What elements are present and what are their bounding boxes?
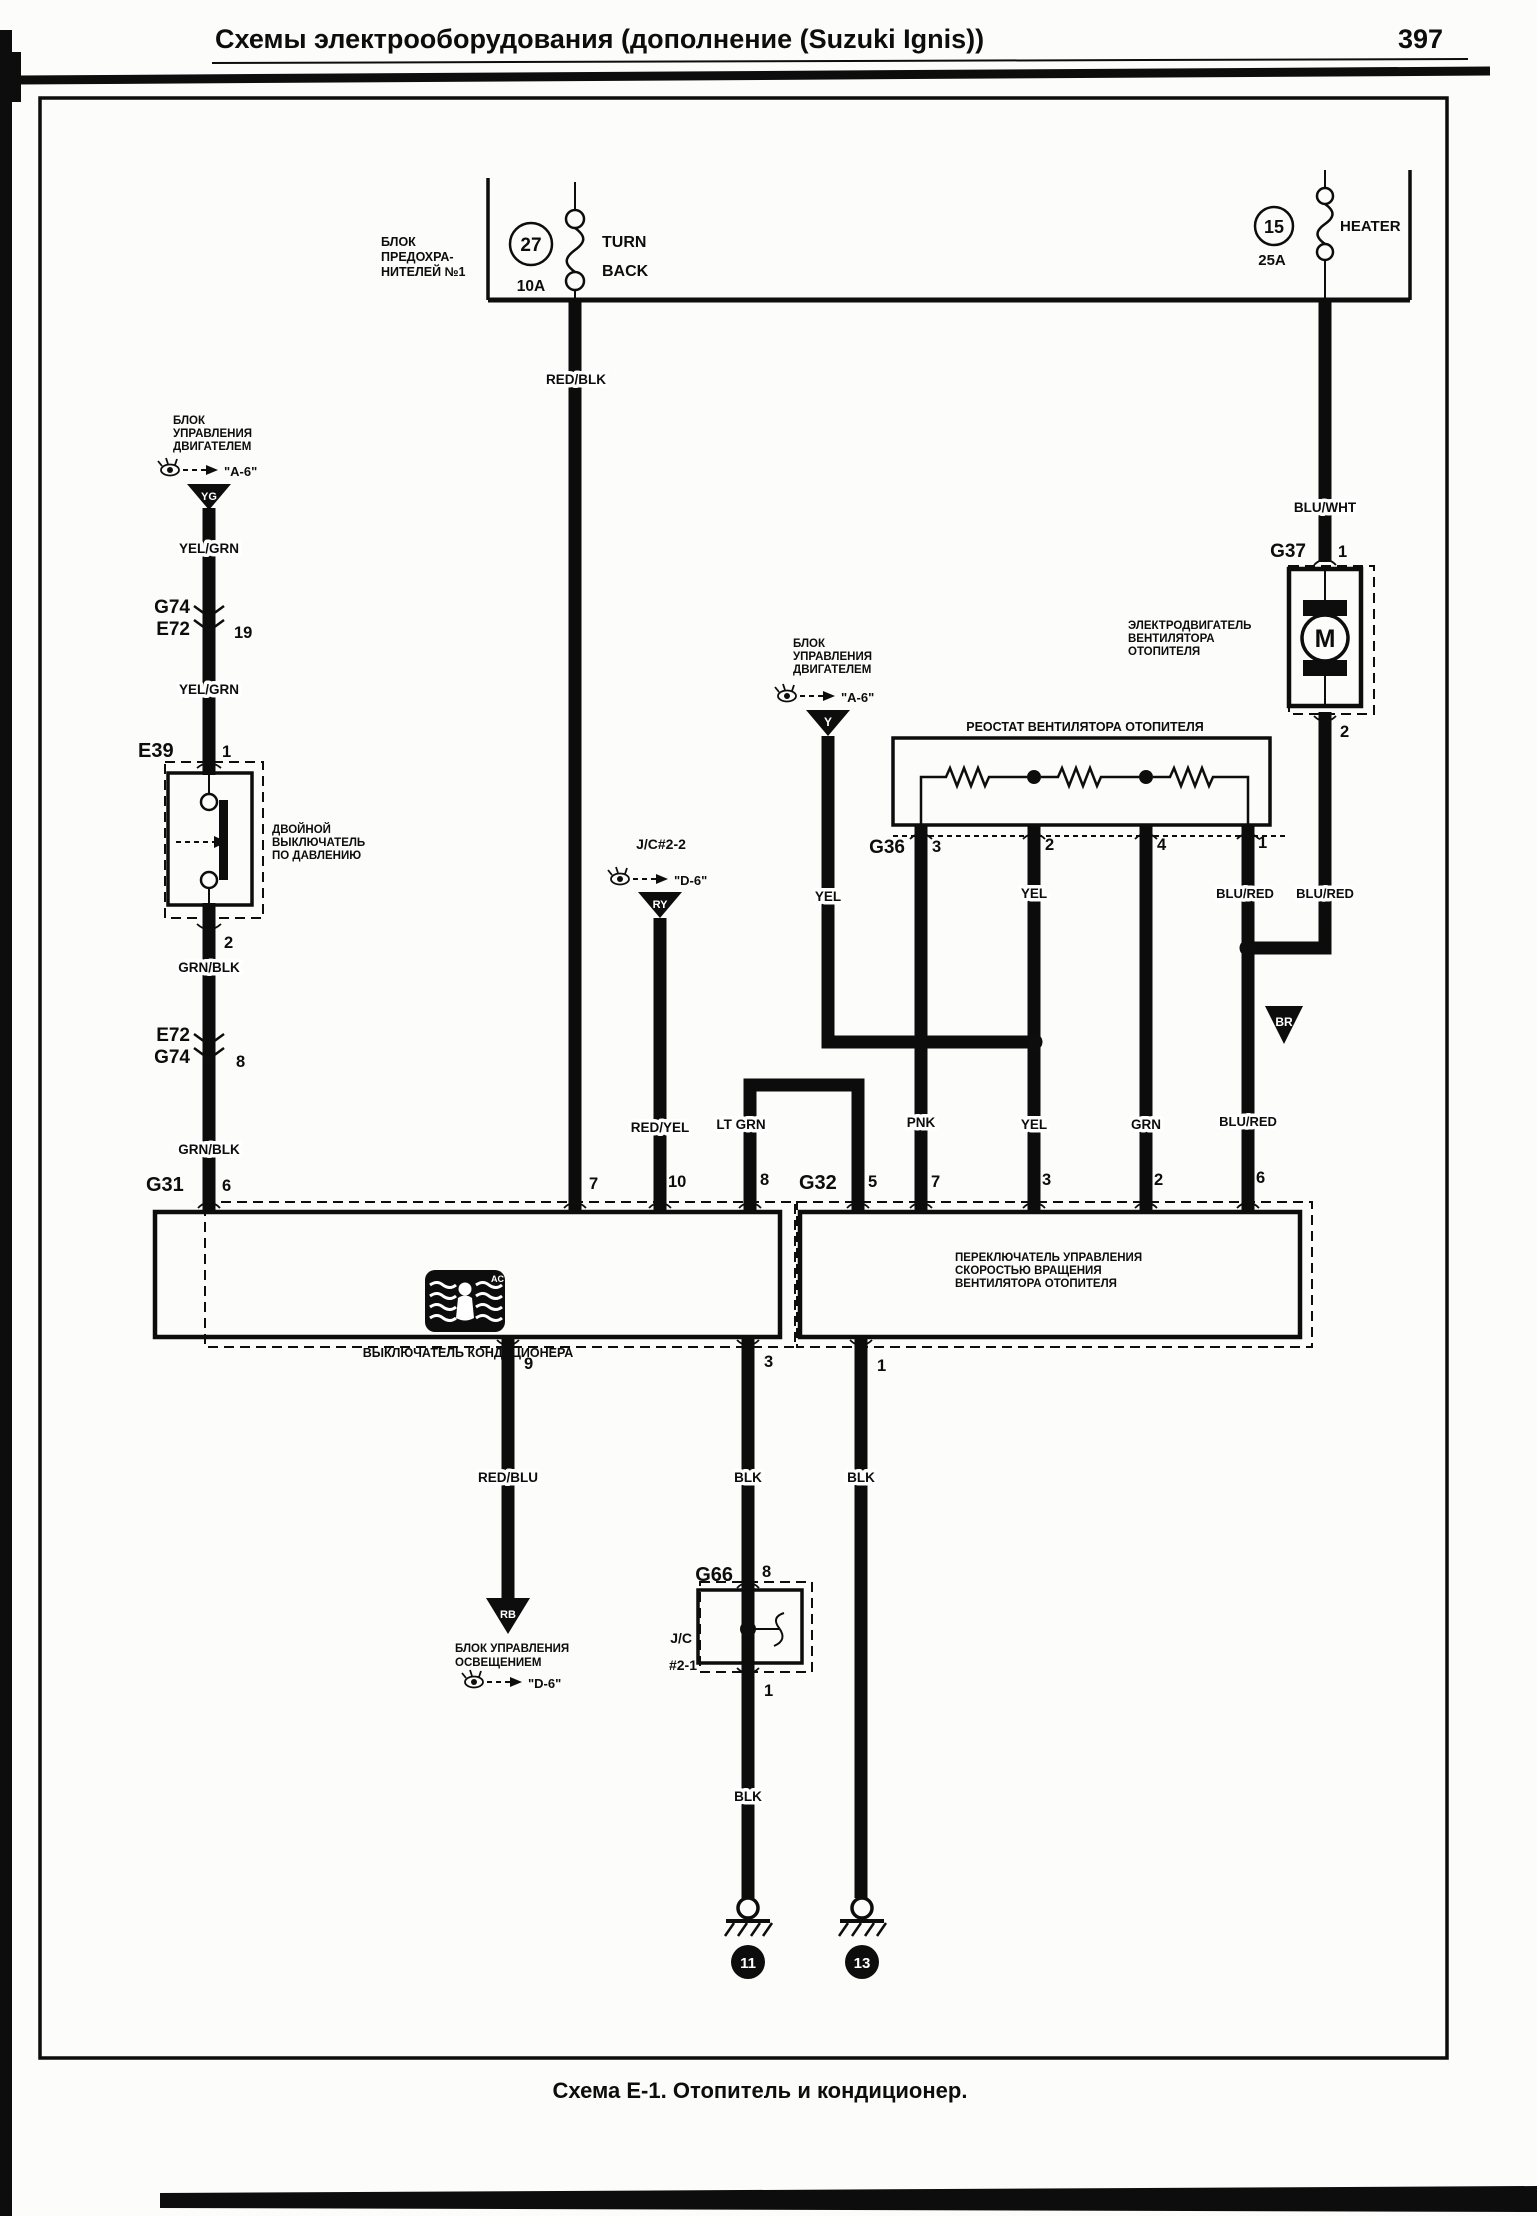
svg-text:ДВИГАТЕЛЕМ: ДВИГАТЕЛЕМ	[793, 664, 871, 676]
svg-text:УПРАВЛЕНИЯ: УПРАВЛЕНИЯ	[173, 428, 252, 440]
svg-text:ЭЛЕКТРОДВИГАТЕЛЬ: ЭЛЕКТРОДВИГАТЕЛЬ	[1128, 620, 1251, 632]
svg-text:6: 6	[1256, 1169, 1265, 1187]
svg-text:1: 1	[764, 1682, 773, 1700]
svg-text:3: 3	[764, 1353, 773, 1371]
page-number: 397	[1398, 24, 1443, 54]
wire-label-blk-2: BLK	[847, 1470, 875, 1485]
wire-label-grn-blk-2: GRN/BLK	[178, 1142, 240, 1157]
svg-text:СКОРОСТЬЮ ВРАЩЕНИЯ: СКОРОСТЬЮ ВРАЩЕНИЯ	[955, 1265, 1102, 1277]
jc21-box: G66 8 J/C #2-1 1	[669, 1563, 812, 1700]
wire-label-red-blu: RED/BLU	[478, 1470, 538, 1485]
svg-text:10: 10	[668, 1173, 686, 1191]
svg-text:3: 3	[932, 838, 941, 856]
wire-label-yel-grn-1: YEL/GRN	[179, 541, 239, 556]
svg-text:2: 2	[1340, 723, 1349, 741]
arrow-icon	[823, 691, 835, 701]
svg-text:#2-1: #2-1	[669, 1657, 697, 1673]
fuse-27: 27 10A TURN BACK	[510, 182, 649, 300]
svg-text:ОСВЕЩЕНИЕМ: ОСВЕЩЕНИЕМ	[455, 1657, 541, 1669]
svg-text:E72: E72	[156, 619, 190, 640]
svg-text:19: 19	[234, 624, 252, 642]
eye-icon	[608, 867, 668, 885]
svg-text:G74: G74	[154, 1047, 190, 1068]
wire-label-grn-blk-1: GRN/BLK	[178, 960, 240, 975]
fuse-symbol	[1318, 204, 1333, 244]
svg-text:Y: Y	[824, 715, 832, 729]
eye-icon	[158, 458, 218, 476]
wire-label-blu-red-mid: BLU/RED	[1219, 1114, 1277, 1129]
title-underline	[212, 59, 1468, 63]
svg-text:5: 5	[868, 1173, 877, 1191]
wire-label-red-yel: RED/YEL	[631, 1120, 690, 1135]
motor-symbol: M	[1315, 625, 1336, 653]
bottom-scan-bar	[160, 2186, 1537, 2212]
svg-text:8: 8	[236, 1053, 245, 1071]
ground-11: 11	[725, 1898, 772, 1979]
fuse-block: БЛОК ПРЕДОХРА- НИТЕЛЕЙ №1 27 10A TURN BA…	[381, 170, 1410, 300]
svg-text:2: 2	[1045, 836, 1054, 854]
ac-switch-box: G31 6 7 10 8 AC ВЫКЛЮЧАТЕЛЬ КОНДИЦИОНЕРА…	[146, 1171, 795, 1373]
connector-g31-label: G31	[146, 1174, 184, 1196]
connector-g37-label: G37	[1270, 541, 1306, 562]
scanned-manual-page: Схемы электрооборудования (дополнение (S…	[0, 0, 1537, 2216]
diagram-caption: Схема Е-1. Отопитель и кондиционер.	[553, 2078, 968, 2103]
svg-text:ВЫКЛЮЧАТЕЛЬ: ВЫКЛЮЧАТЕЛЬ	[272, 837, 365, 849]
svg-text:HEATER: HEATER	[1340, 218, 1401, 235]
wire-label-pnk: PNK	[907, 1115, 936, 1130]
svg-text:RB: RB	[500, 1609, 516, 1621]
svg-text:БЛОК: БЛОК	[173, 415, 206, 427]
eye-icon	[775, 684, 835, 702]
wire-label-yel-grn-2: YEL/GRN	[179, 682, 239, 697]
ref-d6: "D-6"	[528, 1676, 561, 1691]
svg-text:11: 11	[740, 1955, 756, 1972]
svg-text:6: 6	[222, 1177, 231, 1195]
svg-text:13: 13	[854, 1955, 871, 1972]
eye-icon	[462, 1670, 522, 1688]
svg-text:3: 3	[1042, 1171, 1051, 1189]
svg-text:БЛОК: БЛОК	[793, 638, 826, 650]
svg-text:15: 15	[1264, 217, 1284, 237]
wire-label-yel-res: YEL	[1021, 886, 1047, 901]
wire-label-lt-grn: LT GRN	[716, 1117, 765, 1132]
svg-text:J/C: J/C	[670, 1630, 692, 1646]
header-rule	[18, 71, 1490, 80]
svg-text:7: 7	[931, 1173, 940, 1191]
ecu-left-block: БЛОК УПРАВЛЕНИЯ ДВИГАТЕЛЕМ "A-6" YG	[158, 415, 257, 510]
svg-text:ОТОПИТЕЛЯ: ОТОПИТЕЛЯ	[1128, 646, 1200, 658]
svg-text:2: 2	[1154, 1171, 1163, 1189]
wiring-diagram-svg: Схемы электрооборудования (дополнение (S…	[0, 0, 1537, 2216]
ground-13: 13	[839, 1898, 886, 1979]
wire-label-blu-red-left: BLU/RED	[1216, 886, 1274, 901]
wire-label-blk-1: BLK	[734, 1470, 762, 1485]
svg-text:YG: YG	[201, 491, 217, 503]
svg-text:7: 7	[589, 1175, 598, 1193]
resistor-3	[1153, 768, 1248, 825]
svg-text:BACK: BACK	[602, 263, 649, 280]
br-splice-marker: BR	[1265, 1006, 1303, 1044]
wire-label-red-blk: RED/BLK	[546, 372, 606, 387]
heater-motor: BLU/WHT G37 1 M ЭЛЕКТРОДВИГАТЕЛЬ ВЕНТИЛЯ…	[1128, 500, 1374, 741]
wire-label-grn: GRN	[1131, 1117, 1161, 1132]
wire-label-blu-red-right: BLU/RED	[1296, 886, 1354, 901]
blower-switch-box: G32 5 7 3 2 6 ПЕРЕКЛЮЧАТЕЛЬ УПРАВЛЕНИЯ С…	[797, 1169, 1312, 1375]
resistor-1	[921, 768, 1027, 825]
svg-text:J/C#2-2: J/C#2-2	[636, 836, 686, 852]
svg-text:2: 2	[224, 934, 233, 952]
svg-text:ВЕНТИЛЯТОРА: ВЕНТИЛЯТОРА	[1128, 633, 1215, 645]
ecu-mid-block: БЛОК УПРАВЛЕНИЯ ДВИГАТЕЛЕМ "A-6" Y	[775, 638, 874, 736]
fuse-block-label: БЛОК	[381, 235, 416, 249]
pressure-switch: E39 1 ДВОЙНОЙ ВЫКЛЮЧАТЕЛЬ ПО ДАВЛЕНИЮ 2	[138, 740, 365, 952]
svg-text:10A: 10A	[517, 278, 545, 295]
svg-text:AC: AC	[491, 1274, 504, 1284]
svg-text:ДВОЙНОЙ: ДВОЙНОЙ	[272, 823, 331, 836]
page-header: Схемы электрооборудования (дополнение (S…	[18, 24, 1490, 80]
resistor-title: РЕОСТАТ ВЕНТИЛЯТОРА ОТОПИТЕЛЯ	[966, 720, 1204, 734]
wire-label-blk-3: BLK	[734, 1789, 762, 1804]
lighting-control-ref: RB БЛОК УПРАВЛЕНИЯ ОСВЕЩЕНИЕМ "D-6"	[455, 1598, 569, 1691]
svg-text:27: 27	[520, 235, 541, 256]
arrow-icon	[206, 465, 218, 475]
wires	[209, 300, 1325, 1898]
resistor-2	[1041, 768, 1139, 786]
svg-text:ПО ДАВЛЕНИЮ: ПО ДАВЛЕНИЮ	[272, 850, 361, 862]
svg-text:ПЕРЕКЛЮЧАТЕЛЬ УПРАВЛЕНИЯ: ПЕРЕКЛЮЧАТЕЛЬ УПРАВЛЕНИЯ	[955, 1252, 1142, 1264]
svg-text:BR: BR	[1275, 1015, 1293, 1029]
svg-text:1: 1	[1338, 543, 1347, 561]
ac-switch-label: ВЫКЛЮЧАТЕЛЬ КОНДИЦИОНЕРА	[363, 1346, 574, 1360]
wire-label-yel-mid: YEL	[1021, 1117, 1047, 1132]
fuse-15: 15 25A HEATER	[1255, 170, 1401, 300]
wire-motor-blu-red	[1250, 712, 1325, 948]
ref-a6: "A-6"	[841, 690, 874, 705]
svg-text:4: 4	[1157, 836, 1167, 854]
svg-text:E72: E72	[156, 1025, 190, 1046]
svg-text:RY: RY	[653, 899, 669, 911]
connector-e72-g74: E72 G74 8	[154, 1025, 245, 1071]
arrow-icon	[510, 1677, 522, 1687]
svg-text:НИТЕЛЕЙ №1: НИТЕЛЕЙ №1	[381, 264, 465, 279]
ref-a6: "A-6"	[224, 464, 257, 479]
svg-text:ПРЕДОХРА-: ПРЕДОХРА-	[381, 250, 454, 264]
svg-text:БЛОК УПРАВЛЕНИЯ: БЛОК УПРАВЛЕНИЯ	[455, 1643, 569, 1655]
ac-icon: AC	[425, 1270, 505, 1332]
wire-yel-ecu	[828, 736, 1030, 1042]
ref-d6: "D-6"	[674, 873, 707, 888]
junction-dot	[1240, 940, 1257, 957]
svg-text:25A: 25A	[1258, 252, 1286, 269]
svg-text:8: 8	[762, 1563, 771, 1581]
fuse-symbol	[567, 228, 584, 272]
jc22-block: J/C#2-2 "D-6" RY	[608, 836, 707, 918]
wire-label-blu-wht: BLU/WHT	[1294, 500, 1357, 515]
ground-icon	[839, 1923, 886, 1936]
svg-text:УПРАВЛЕНИЯ: УПРАВЛЕНИЯ	[793, 651, 872, 663]
page-title: Схемы электрооборудования (дополнение (S…	[215, 24, 984, 54]
connector-g36-label: G36	[869, 837, 905, 858]
svg-text:TURN: TURN	[602, 234, 646, 251]
svg-text:ВЕНТИЛЯТОРА ОТОПИТЕЛЯ: ВЕНТИЛЯТОРА ОТОПИТЕЛЯ	[955, 1278, 1117, 1290]
svg-text:ДВИГАТЕЛЕМ: ДВИГАТЕЛЕМ	[173, 441, 251, 453]
ground-icon	[725, 1923, 772, 1936]
svg-text:8: 8	[760, 1171, 769, 1189]
scan-binding-marks	[0, 30, 1537, 2216]
svg-text:1: 1	[222, 743, 231, 761]
heater-resistor-block: РЕОСТАТ ВЕНТИЛЯТОРА ОТОПИТЕЛЯ G36 3 2 4 …	[869, 720, 1285, 858]
wire-label-yel-ecu: YEL	[815, 889, 841, 904]
svg-text:1: 1	[877, 1357, 886, 1375]
connector-g32-label: G32	[799, 1172, 837, 1194]
arrow-icon	[656, 874, 668, 884]
connector-e39-label: E39	[138, 740, 174, 762]
svg-text:1: 1	[1258, 834, 1267, 852]
svg-text:G74: G74	[154, 597, 190, 618]
svg-text:9: 9	[524, 1355, 533, 1373]
